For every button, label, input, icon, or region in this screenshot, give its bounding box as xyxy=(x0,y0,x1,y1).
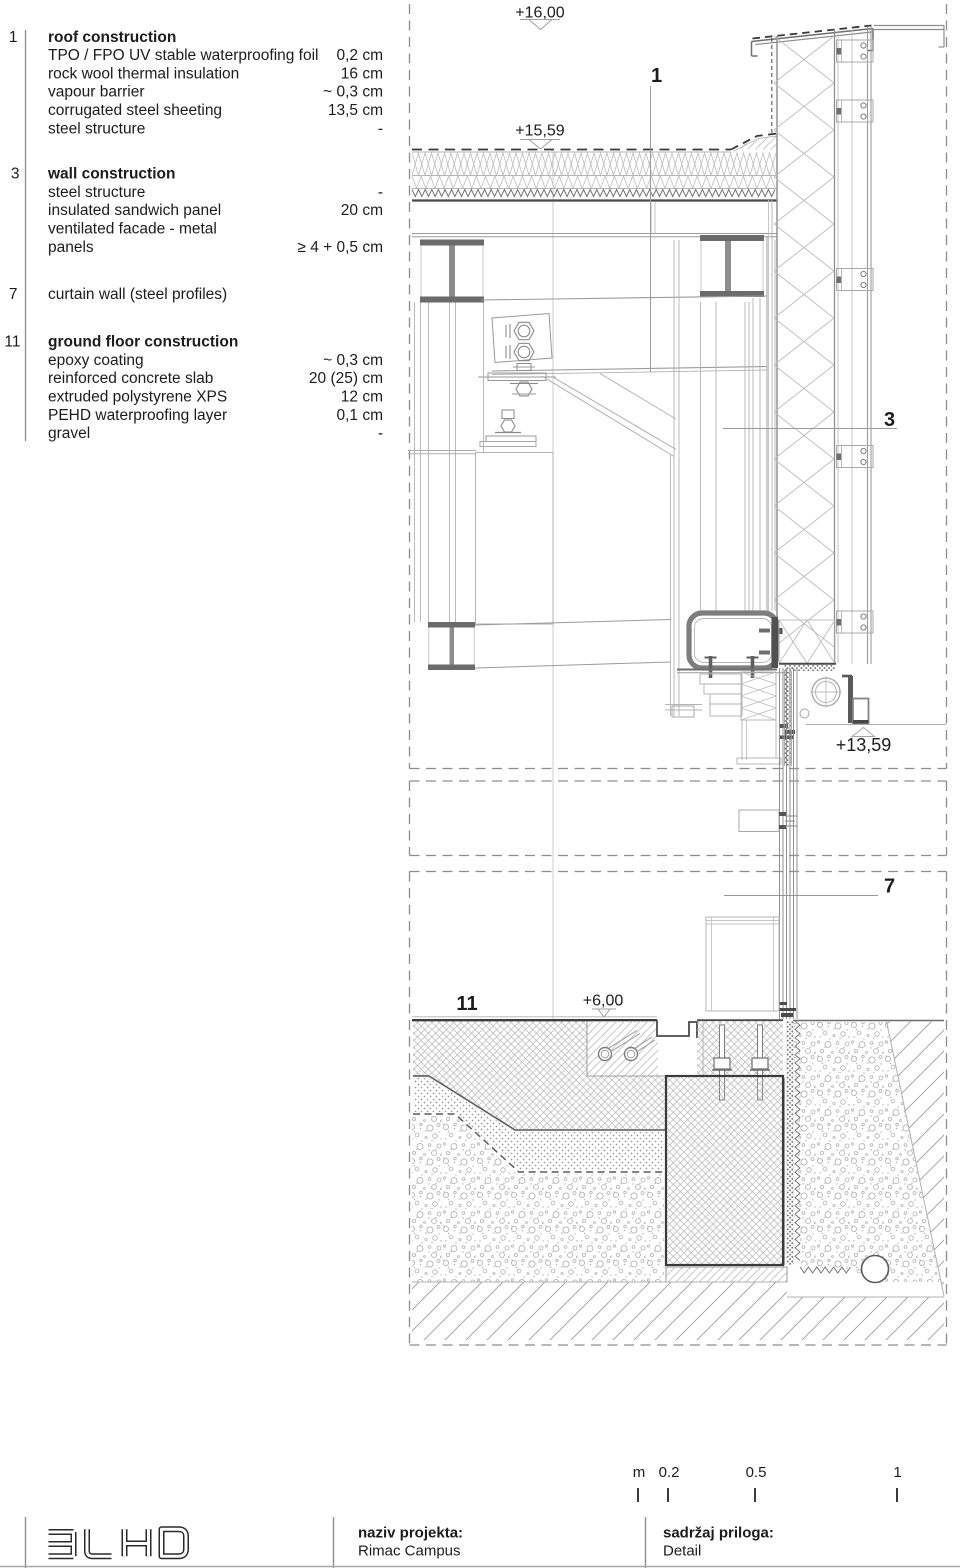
svg-text:3: 3 xyxy=(884,409,895,431)
svg-text:reinforced concrete slab: reinforced concrete slab xyxy=(48,370,213,387)
svg-text:20 cm: 20 cm xyxy=(341,202,383,219)
svg-text:7: 7 xyxy=(9,286,18,303)
svg-text:PEHD waterproofing layer: PEHD waterproofing layer xyxy=(48,407,227,424)
svg-text:+6,00: +6,00 xyxy=(583,993,624,1010)
svg-text:3: 3 xyxy=(11,166,20,183)
svg-text:0,2 cm: 0,2 cm xyxy=(336,47,383,64)
svg-text:vapour barrier: vapour barrier xyxy=(48,84,145,101)
svg-text:corrugated steel sheeting: corrugated steel sheeting xyxy=(48,102,222,119)
svg-text:-: - xyxy=(378,184,383,201)
svg-text:~ 0,3 cm: ~ 0,3 cm xyxy=(323,84,383,101)
svg-text:panels: panels xyxy=(48,239,94,256)
svg-text:7: 7 xyxy=(884,876,895,898)
svg-text:+15,59: +15,59 xyxy=(515,123,564,140)
svg-text:0.2: 0.2 xyxy=(659,1464,680,1481)
svg-text:sadržaj priloga:: sadržaj priloga: xyxy=(663,1525,774,1542)
svg-text:m: m xyxy=(633,1464,646,1481)
svg-text:Detail: Detail xyxy=(663,1543,701,1560)
svg-text:1: 1 xyxy=(9,29,18,46)
svg-text:20 (25) cm: 20 (25) cm xyxy=(309,370,383,387)
svg-text:0.5: 0.5 xyxy=(746,1464,767,1481)
svg-text:≥ 4 + 0,5 cm: ≥ 4 + 0,5 cm xyxy=(297,239,383,256)
svg-text:-: - xyxy=(378,120,383,137)
svg-text:11: 11 xyxy=(456,993,477,1015)
svg-text:wall construction: wall construction xyxy=(47,166,175,183)
svg-text:0,1 cm: 0,1 cm xyxy=(336,407,383,424)
svg-text:16 cm: 16 cm xyxy=(341,65,383,82)
svg-text:11: 11 xyxy=(4,334,20,351)
svg-text:steel structure: steel structure xyxy=(48,184,145,201)
svg-text:gravel: gravel xyxy=(48,425,90,442)
svg-text:insulated sandwich panel: insulated sandwich panel xyxy=(48,202,221,219)
svg-text:+13,59: +13,59 xyxy=(836,735,892,755)
svg-text:roof construction: roof construction xyxy=(48,29,176,46)
svg-text:13,5 cm: 13,5 cm xyxy=(328,102,383,119)
svg-text:ventilated facade - metal: ventilated facade - metal xyxy=(48,221,217,238)
svg-text:-: - xyxy=(378,425,383,442)
svg-text:naziv projekta:: naziv projekta: xyxy=(358,1525,463,1542)
svg-text:epoxy coating: epoxy coating xyxy=(48,352,144,369)
svg-text:curtain wall (steel profiles): curtain wall (steel profiles) xyxy=(48,286,227,303)
svg-text:rock wool thermal insulation: rock wool thermal insulation xyxy=(48,65,239,82)
svg-text:TPO / FPO UV stable waterproof: TPO / FPO UV stable waterproofing foil xyxy=(48,47,319,64)
svg-text:+16,00: +16,00 xyxy=(515,5,564,22)
svg-text:~ 0,3 cm: ~ 0,3 cm xyxy=(323,352,383,369)
svg-text:12 cm: 12 cm xyxy=(341,389,383,406)
svg-text:steel structure: steel structure xyxy=(48,120,145,137)
svg-text:1: 1 xyxy=(651,65,662,87)
svg-text:ground floor construction: ground floor construction xyxy=(48,334,238,351)
svg-text:extruded polystyrene XPS: extruded polystyrene XPS xyxy=(48,389,227,406)
svg-text:1: 1 xyxy=(893,1464,901,1481)
svg-text:Rimac Campus: Rimac Campus xyxy=(358,1543,461,1560)
